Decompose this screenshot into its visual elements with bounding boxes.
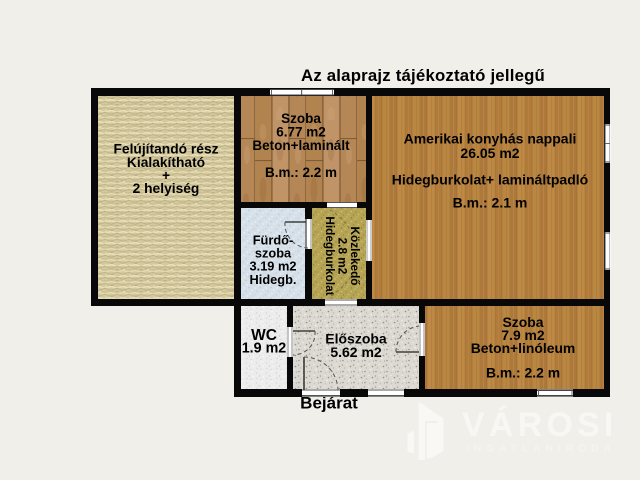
svg-text:Bejárat: Bejárat	[300, 394, 358, 413]
svg-text:VÁROSI: VÁROSI	[462, 406, 618, 444]
svg-text:5.62 m2: 5.62 m2	[330, 344, 382, 360]
svg-text:1.9 m2: 1.9 m2	[242, 341, 287, 357]
svg-text:INGATLANIRODA: INGATLANIRODA	[466, 443, 616, 455]
svg-text:B.m.: 2.2 m: B.m.: 2.2 m	[486, 365, 560, 381]
svg-text:26.05 m2: 26.05 m2	[460, 145, 519, 161]
svg-text:2 helyiség: 2 helyiség	[133, 181, 200, 196]
svg-text:Beton+linóleum: Beton+linóleum	[471, 340, 576, 356]
svg-text:Hidegburkolat: Hidegburkolat	[323, 216, 337, 295]
svg-text:Hidegb.: Hidegb.	[250, 272, 297, 287]
svg-text:B.m.: 2.1 m: B.m.: 2.1 m	[453, 195, 528, 211]
svg-text:Beton+laminált: Beton+laminált	[252, 138, 350, 153]
svg-text:Hidegburkolat+ lamináltpadló: Hidegburkolat+ lamináltpadló	[392, 172, 588, 188]
svg-text:Az alaprajz tájékoztató jelleg: Az alaprajz tájékoztató jellegű	[301, 66, 545, 85]
svg-text:B.m.: 2.2 m: B.m.: 2.2 m	[265, 165, 337, 180]
